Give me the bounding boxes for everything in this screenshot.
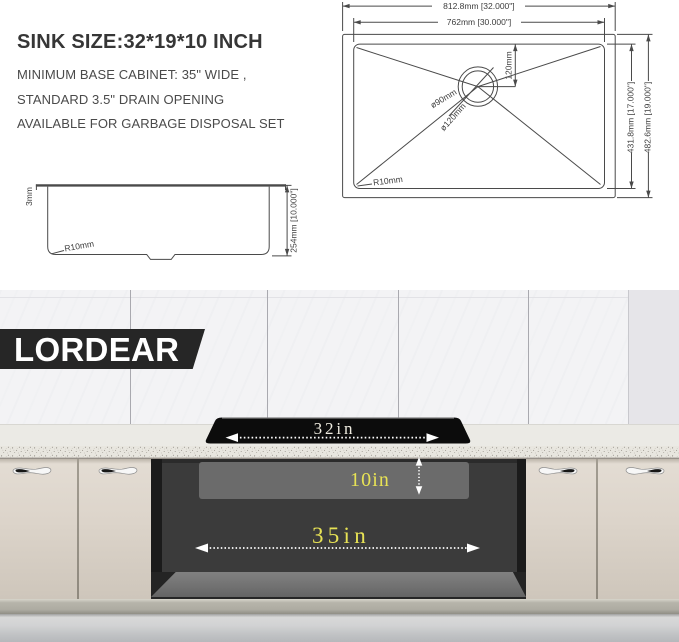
svg-text:812.8mm [32.000"]: 812.8mm [32.000"] bbox=[443, 1, 515, 11]
svg-text:ø90mm: ø90mm bbox=[429, 87, 459, 110]
svg-text:254mm [10.000"]: 254mm [10.000"] bbox=[289, 188, 299, 252]
svg-text:R10mm: R10mm bbox=[64, 238, 95, 253]
svg-text:32in: 32in bbox=[314, 419, 356, 438]
svg-text:431.8mm [17.000"]: 431.8mm [17.000"] bbox=[626, 82, 636, 154]
svg-text:120mm: 120mm bbox=[504, 51, 514, 79]
svg-text:762mm [30.000"]: 762mm [30.000"] bbox=[447, 17, 511, 27]
svg-text:R10mm: R10mm bbox=[373, 174, 404, 188]
svg-text:482.6mm [19.000"]: 482.6mm [19.000"] bbox=[643, 82, 653, 154]
svg-text:3mm: 3mm bbox=[24, 187, 34, 206]
svg-text:ø120mm: ø120mm bbox=[438, 101, 468, 133]
